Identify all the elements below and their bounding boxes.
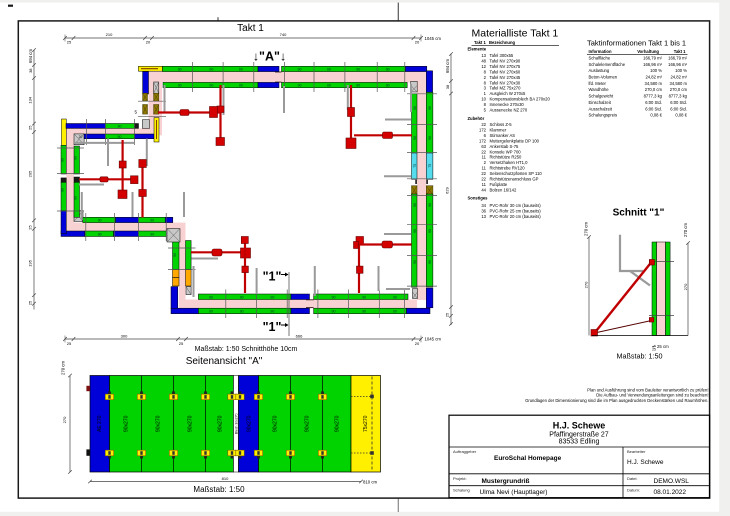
svg-text:90: 90 (356, 84, 360, 88)
svg-text:Richtstrebe RV120: Richtstrebe RV120 (490, 166, 526, 171)
svg-text:195: 195 (28, 259, 33, 266)
svg-text:90x270: 90x270 (218, 415, 224, 432)
svg-text:100 %: 100 % (675, 68, 687, 73)
svg-text:270 cm: 270 cm (584, 222, 589, 237)
svg-text:6:00 Std.: 6:00 Std. (670, 100, 687, 105)
svg-text:90: 90 (74, 196, 78, 200)
svg-text:90: 90 (413, 229, 417, 233)
svg-text:90x270: 90x270 (247, 415, 253, 432)
svg-text:DEMO.WSL: DEMO.WSL (654, 478, 690, 485)
svg-text:20: 20 (146, 40, 151, 45)
svg-text:08.01.2022: 08.01.2022 (654, 489, 687, 496)
svg-text:90: 90 (386, 84, 390, 88)
svg-text:166,79 m²: 166,79 m² (643, 56, 662, 61)
svg-text:8777,3 kg: 8777,3 kg (644, 94, 663, 99)
svg-text:Stirnanker AS: Stirnanker AS (490, 133, 516, 138)
svg-text:90: 90 (209, 68, 213, 72)
svg-text:90x270: 90x270 (156, 415, 162, 432)
svg-text:13: 13 (481, 53, 486, 58)
svg-text:Schalung: Schalung (453, 488, 470, 493)
svg-text:Bezeichnung: Bezeichnung (489, 40, 515, 45)
svg-text:270 cm: 270 cm (683, 223, 688, 238)
svg-text:90: 90 (270, 310, 274, 314)
svg-text:90: 90 (413, 106, 417, 110)
svg-text:90: 90 (356, 68, 360, 72)
svg-text:"1": "1" (263, 270, 282, 284)
svg-text:Zubehör: Zubehör (468, 116, 485, 121)
svg-text:810: 810 (222, 476, 229, 481)
svg-text:1045 cm: 1045 cm (425, 337, 442, 342)
svg-text:6:00 Std.: 6:00 Std. (645, 106, 662, 111)
svg-text:90: 90 (74, 156, 78, 160)
svg-text:38: 38 (445, 84, 450, 89)
svg-text:Tafel NV 270x45: Tafel NV 270x45 (490, 75, 521, 80)
svg-text:90: 90 (209, 84, 213, 88)
svg-text:270,0 cm: 270,0 cm (645, 87, 663, 92)
svg-text:Tafel MZ 75x270: Tafel MZ 75x270 (490, 86, 522, 91)
svg-text:90: 90 (298, 84, 302, 88)
svg-text:810 cm: 810 cm (363, 480, 378, 485)
svg-text:Projekt:: Projekt: (453, 476, 467, 481)
svg-text:25 cm: 25 cm (657, 344, 669, 349)
svg-text:90: 90 (393, 295, 397, 299)
svg-text:90: 90 (327, 68, 331, 72)
svg-text:270,0 cm: 270,0 cm (670, 87, 688, 92)
svg-text:11: 11 (482, 166, 487, 171)
svg-text:Ulma Nevi (Hauptlager): Ulma Nevi (Hauptlager) (480, 489, 548, 496)
svg-text:90: 90 (150, 232, 154, 236)
svg-text:270: 270 (62, 416, 67, 423)
svg-text:Materialliste Takt 1: Materialliste Takt 1 (472, 28, 559, 40)
svg-text:90: 90 (428, 136, 432, 140)
svg-text:AE 270: AE 270 (97, 415, 103, 432)
svg-text:24,82 m³: 24,82 m³ (645, 75, 662, 80)
svg-text:36: 36 (481, 209, 486, 214)
svg-text:Wandhöhe: Wandhöhe (589, 87, 610, 92)
svg-text:90: 90 (240, 295, 244, 299)
svg-text:90: 90 (386, 68, 390, 72)
svg-text:Takt 1: Takt 1 (474, 40, 486, 45)
svg-text:Grundlagen der Dimensionierung: Grundlagen der Dimensionierung sind die … (525, 398, 708, 403)
svg-text:75: 75 (413, 164, 417, 168)
svg-text:Taktinformationen Takt 1 bis: Taktinformationen Takt 1 bis 1 (587, 38, 686, 47)
svg-text:25: 25 (28, 300, 33, 305)
svg-text:Muttergelenkplatte DP 100: Muttergelenkplatte DP 100 (490, 139, 540, 144)
svg-text:90: 90 (362, 310, 366, 314)
svg-text:Datei:: Datei: (627, 476, 637, 481)
svg-text:Klammer: Klammer (490, 128, 507, 133)
svg-text:90: 90 (413, 260, 417, 264)
svg-text:Bolzen 16/142: Bolzen 16/142 (490, 187, 517, 192)
svg-text:Bearbeiter: Bearbeiter (627, 449, 646, 454)
svg-text:22: 22 (481, 171, 486, 176)
svg-text:Tafel NV 270x60: Tafel NV 270x60 (490, 70, 521, 75)
svg-text:EuroSchal Homepage: EuroSchal Homepage (494, 455, 562, 462)
svg-text:Seitenansicht "A": Seitenansicht "A" (186, 356, 263, 367)
svg-text:25: 25 (28, 225, 33, 230)
svg-text:20: 20 (79, 135, 83, 139)
svg-text:166,96 m²: 166,96 m² (668, 62, 687, 67)
svg-text:90: 90 (178, 68, 182, 72)
svg-text:90: 90 (239, 68, 243, 72)
svg-text:Tafel NV 270x75: Tafel NV 270x75 (490, 64, 521, 69)
svg-text:Fußplatte: Fußplatte (490, 182, 508, 187)
svg-text:90: 90 (178, 84, 182, 88)
svg-text:Tafel NV 270x90: Tafel NV 270x90 (490, 59, 521, 64)
svg-text:PVC-Rohr 25 cm (bauseits): PVC-Rohr 25 cm (bauseits) (490, 209, 542, 214)
svg-text:90: 90 (150, 219, 154, 223)
svg-text:Schnitt "1": Schnitt "1" (613, 208, 665, 219)
svg-text:Schalelementfläche: Schalelementfläche (589, 62, 626, 67)
svg-text:90: 90 (61, 188, 65, 192)
svg-text:Aussenecke NZ 270: Aussenecke NZ 270 (490, 107, 528, 112)
svg-text:22: 22 (481, 176, 486, 181)
svg-text:90x270: 90x270 (305, 415, 311, 432)
svg-text:205: 205 (28, 170, 33, 177)
svg-text:↓"A"↓: ↓"A"↓ (253, 50, 286, 64)
svg-text:0,08 €: 0,08 € (675, 113, 687, 118)
svg-text:Richtstützenanschluss GP: Richtstützenanschluss GP (490, 176, 539, 181)
svg-text:740: 740 (280, 32, 287, 37)
svg-text:Pfaffingerstraße 27: Pfaffingerstraße 27 (549, 431, 609, 438)
svg-text:10: 10 (481, 97, 486, 102)
svg-text:90: 90 (413, 203, 417, 207)
svg-text:22: 22 (481, 149, 486, 154)
svg-text:270: 270 (683, 283, 688, 290)
svg-text:34,580 m: 34,580 m (645, 81, 663, 86)
svg-text:Schloss Z-5: Schloss Z-5 (490, 122, 513, 127)
svg-text:Tafel 300x55: Tafel 300x55 (490, 53, 514, 58)
svg-text:Maßstab: 1:50 Schnitthöhe: Maßstab: 1:50 Schnitthöhe 10cm (195, 346, 298, 353)
svg-text:48: 48 (481, 59, 486, 64)
svg-text:38: 38 (28, 68, 33, 73)
svg-text:34,580 m: 34,580 m (670, 81, 688, 86)
svg-text:90: 90 (413, 136, 417, 140)
svg-text:Auslastung: Auslastung (589, 68, 610, 73)
svg-text:90x270: 90x270 (335, 415, 341, 432)
svg-text:Maßstab: 1:50: Maßstab: 1:50 (193, 485, 245, 494)
svg-text:90x270: 90x270 (188, 415, 194, 432)
svg-text:Vorhaltung: Vorhaltung (637, 49, 659, 54)
svg-text:20: 20 (415, 341, 420, 346)
svg-text:22: 22 (481, 122, 486, 127)
svg-text:Schalfläche: Schalfläche (589, 56, 611, 61)
svg-text:25: 25 (28, 125, 33, 130)
svg-text:83533 Edling: 83533 Edling (559, 438, 600, 445)
svg-text:Ausgleich W 270x5: Ausgleich W 270x5 (490, 91, 527, 96)
svg-text:Auftraggeber: Auftraggeber (453, 449, 477, 454)
svg-text:90: 90 (428, 106, 432, 110)
svg-text:8777,3 kg: 8777,3 kg (669, 94, 688, 99)
svg-text:90x270: 90x270 (124, 415, 130, 432)
svg-text:25: 25 (179, 341, 184, 346)
svg-text:PVC-Rohr 20 cm (bauseits): PVC-Rohr 20 cm (bauseits) (490, 214, 542, 219)
svg-text:90: 90 (173, 253, 177, 257)
svg-text:90: 90 (332, 295, 336, 299)
svg-text:75x270: 75x270 (363, 415, 369, 432)
svg-text:90: 90 (118, 135, 122, 139)
svg-text:H.J. Schewe: H.J. Schewe (627, 459, 664, 466)
svg-text:90: 90 (428, 229, 432, 233)
svg-text:172: 172 (479, 139, 487, 144)
svg-text:Takt 1: Takt 1 (237, 23, 264, 34)
svg-text:90: 90 (428, 203, 432, 207)
svg-text:270: 270 (584, 281, 589, 288)
svg-text:12: 12 (481, 64, 486, 69)
svg-text:11: 11 (482, 155, 487, 160)
svg-text:Blech 30x270: Blech 30x270 (234, 413, 238, 434)
svg-text:694 cm: 694 cm (445, 59, 450, 74)
svg-text:270 cm: 270 cm (61, 361, 66, 376)
svg-text:90: 90 (298, 68, 302, 72)
svg-text:44: 44 (481, 187, 486, 192)
svg-text:90: 90 (98, 219, 102, 223)
svg-text:Innenecke 270x30: Innenecke 270x30 (490, 102, 525, 107)
svg-text:Konsole WP 700: Konsole WP 700 (490, 149, 522, 154)
svg-text:Schalgewicht: Schalgewicht (589, 94, 615, 99)
svg-text:694 cm: 694 cm (28, 49, 33, 64)
svg-text:Elemente: Elemente (468, 46, 487, 51)
svg-text:11: 11 (482, 182, 487, 187)
svg-text:Takt 1: Takt 1 (674, 49, 686, 54)
svg-text:Information: Information (589, 49, 612, 54)
svg-text:lfd. Meter: lfd. Meter (589, 81, 607, 86)
svg-text:Einschalzeit: Einschalzeit (589, 100, 612, 105)
svg-text:166,79 m²: 166,79 m² (668, 56, 687, 61)
svg-text:90: 90 (209, 310, 213, 314)
svg-text:90: 90 (393, 310, 397, 314)
svg-text:90: 90 (209, 295, 213, 299)
svg-text:Beton-Volumen: Beton-Volumen (589, 75, 618, 80)
svg-text:75: 75 (428, 164, 432, 168)
svg-text:300: 300 (121, 333, 128, 338)
svg-text:Mustergrundriß: Mustergrundriß (482, 478, 530, 485)
svg-text:166,96 m²: 166,96 m² (643, 62, 662, 67)
svg-text:Sonstiges: Sonstiges (468, 196, 489, 201)
svg-text:90: 90 (240, 310, 244, 314)
svg-text:134: 134 (28, 96, 33, 103)
svg-text:Seitenschutzpfosten SP 110: Seitenschutzpfosten SP 110 (490, 171, 543, 176)
svg-text:0,08 €: 0,08 € (650, 113, 662, 118)
svg-text:Richtstütze R250: Richtstütze R250 (490, 155, 523, 160)
svg-text:90: 90 (239, 84, 243, 88)
svg-text:90x270: 90x270 (273, 415, 279, 432)
svg-text:34: 34 (481, 203, 486, 208)
svg-text:PVC-Rohr 30 cm (bauseits): PVC-Rohr 30 cm (bauseits) (490, 203, 542, 208)
svg-text:13: 13 (481, 214, 486, 219)
svg-text:666: 666 (296, 333, 303, 338)
svg-text:Versetzhaken HT1,0: Versetzhaken HT1,0 (490, 160, 529, 165)
svg-text:210: 210 (106, 32, 113, 37)
svg-text:6:00 Std.: 6:00 Std. (645, 100, 662, 105)
svg-text:Kompensationsblech BA 270x20: Kompensationsblech BA 270x20 (490, 97, 551, 102)
svg-text:90: 90 (270, 295, 274, 299)
svg-text:Ankerstab S-75: Ankerstab S-75 (490, 144, 520, 149)
svg-text:Maßstab: 1:50: Maßstab: 1:50 (617, 352, 663, 361)
svg-text:Schalungspreis: Schalungspreis (589, 113, 618, 118)
svg-text:Tafel NV 270x30: Tafel NV 270x30 (490, 80, 521, 85)
svg-text:90: 90 (332, 310, 336, 314)
svg-text:20: 20 (415, 40, 420, 45)
svg-text:Datum:: Datum: (627, 488, 640, 493)
svg-text:25: 25 (67, 341, 72, 346)
svg-text:90: 90 (327, 84, 331, 88)
svg-text:63: 63 (481, 144, 486, 149)
svg-text:1045 cm: 1045 cm (425, 36, 442, 41)
svg-text:6:00 Std.: 6:00 Std. (670, 106, 687, 111)
svg-text:90: 90 (362, 295, 366, 299)
svg-text:90: 90 (98, 232, 102, 236)
svg-text:24,82 m³: 24,82 m³ (670, 75, 687, 80)
svg-text:"1": "1" (263, 320, 282, 334)
svg-text:H.J. Schewe: H.J. Schewe (553, 421, 606, 431)
svg-text:25: 25 (67, 40, 72, 45)
svg-text:Ausschalzeit: Ausschalzeit (589, 106, 613, 111)
svg-text:90: 90 (118, 125, 122, 129)
svg-text:25: 25 (445, 312, 450, 317)
svg-text:100 %: 100 % (650, 68, 662, 73)
svg-text:90: 90 (61, 158, 65, 162)
svg-text:90: 90 (428, 260, 432, 264)
svg-text:172: 172 (479, 128, 487, 133)
svg-text:629: 629 (445, 186, 450, 193)
